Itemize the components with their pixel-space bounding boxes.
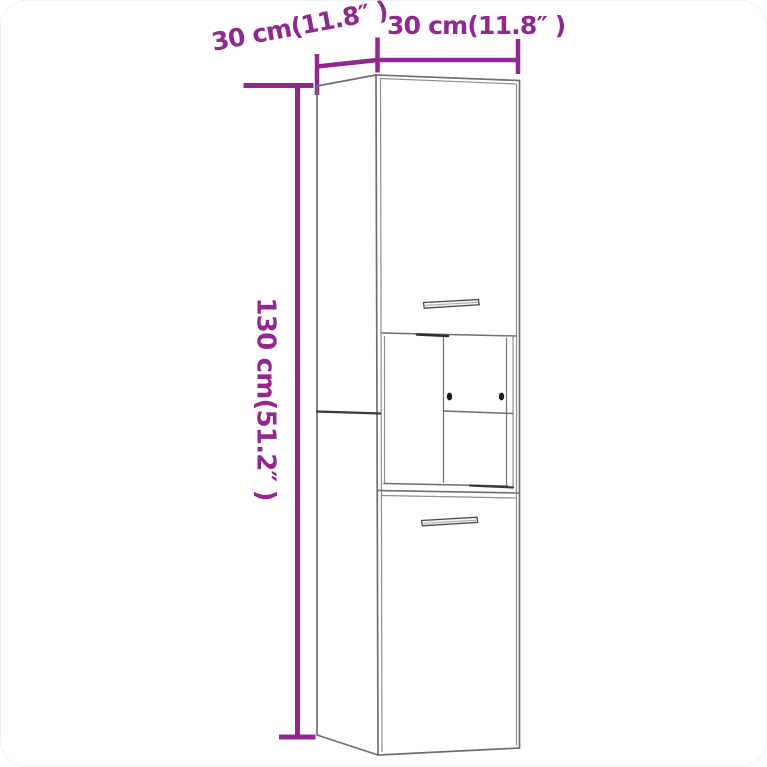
door-gap-left-edge [381, 79, 383, 753]
depth-dimension-line [317, 54, 378, 95]
cabinet-side-top-edge [317, 75, 376, 86]
screw-hole-right [499, 393, 504, 401]
height-dimension-label: 130 cm(51.2″ ) [253, 298, 279, 499]
lower-door [382, 496, 517, 526]
cabinet-front-bottom-edge [378, 748, 520, 755]
screw-hole-left [447, 393, 452, 401]
cabinet-line-drawing [0, 0, 767, 767]
cabinet-outline [317, 75, 520, 755]
upper-door-bottom-shadow [417, 335, 448, 337]
lower-door-handle [422, 517, 478, 526]
door-gap-edges [381, 79, 517, 753]
cabinet-front-left-edge [376, 75, 378, 755]
open-shelf-compartment [378, 337, 520, 494]
depth-dimension-main-line [317, 60, 378, 67]
product-dimension-diagram: 30 cm(11.8″ ) 30 cm(11.8″ ) 130 cm(51.2″… [0, 0, 767, 767]
width-dimension-label: 30 cm(11.8″ ) [387, 13, 587, 39]
compartment-back-joint-line [444, 411, 514, 414]
side-panel-joint-line [317, 412, 381, 414]
screw-holes [447, 393, 504, 401]
upper-door-handle [424, 300, 480, 309]
width-dimension-line [378, 38, 519, 75]
cabinet-side-bottom-edge [317, 735, 378, 755]
lower-module-top-edge [378, 491, 520, 494]
upper-door [382, 300, 517, 336]
lower-door-top-edge [382, 496, 517, 499]
